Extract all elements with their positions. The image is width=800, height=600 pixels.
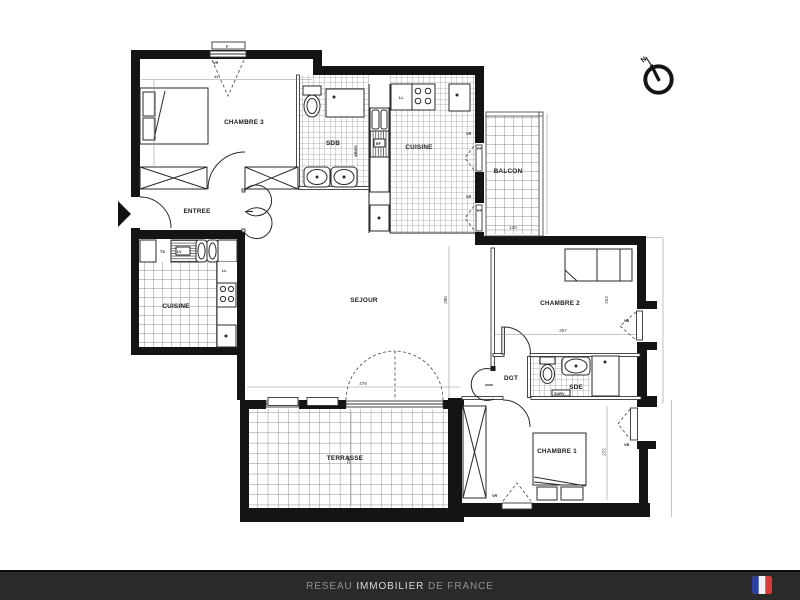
svg-text:ENTREE: ENTREE — [183, 208, 211, 215]
svg-text:VB: VB — [624, 319, 630, 323]
svg-text:SEJOUR: SEJOUR — [350, 297, 378, 304]
svg-text:SURV: SURV — [554, 392, 565, 396]
svg-text:VR: VR — [466, 132, 472, 136]
svg-text:CUISINE: CUISINE — [405, 144, 433, 151]
svg-text:VR: VR — [466, 195, 472, 199]
svg-text:DGT: DGT — [504, 375, 518, 382]
svg-text:CHAMBRE 2: CHAMBRE 2 — [540, 300, 580, 307]
svg-text:LV: LV — [177, 250, 182, 254]
svg-text:CHAMBRE 1: CHAMBRE 1 — [537, 448, 577, 455]
svg-text:VB: VB — [624, 443, 630, 447]
svg-text:VR: VR — [213, 61, 219, 65]
svg-text:253: 253 — [604, 296, 609, 304]
svg-text:SDB: SDB — [326, 140, 340, 147]
svg-text:PF: PF — [477, 209, 483, 213]
svg-text:280: 280 — [443, 296, 448, 304]
svg-text:TERRASSE: TERRASSE — [327, 455, 364, 462]
svg-text:SDE: SDE — [569, 384, 583, 391]
svg-text:120: 120 — [509, 225, 517, 230]
svg-text:LL: LL — [399, 96, 404, 100]
svg-text:RESEAU IMMOBILIER DE FRANCE: RESEAU IMMOBILIER DE FRANCE — [306, 581, 494, 592]
svg-text:BALCON: BALCON — [494, 168, 523, 175]
svg-text:LL: LL — [222, 269, 227, 273]
svg-text:EF: EF — [376, 142, 382, 146]
svg-text:272: 272 — [602, 448, 607, 456]
svg-text:479: 479 — [359, 381, 367, 386]
svg-text:PF: PF — [477, 147, 483, 151]
svg-text:CUISINE: CUISINE — [162, 303, 190, 310]
svg-text:TS: TS — [160, 250, 165, 254]
svg-text:VR: VR — [492, 494, 498, 498]
svg-text:CHAMBRE 3: CHAMBRE 3 — [224, 119, 264, 126]
svg-text:267: 267 — [559, 328, 567, 333]
svg-text:ARISS: ARISS — [354, 145, 358, 157]
